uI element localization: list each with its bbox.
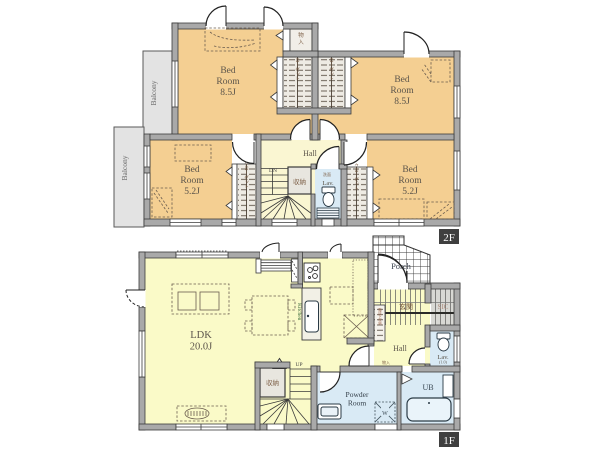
svg-text:クローゼット: クローゼット [354,163,360,191]
svg-text:クローゼット: クローゼット [329,53,335,81]
svg-text:物: 物 [298,31,304,39]
svg-text:玄関: 玄関 [399,302,413,311]
svg-text:Bed: Bed [402,165,418,175]
svg-text:Balcony: Balcony [149,80,158,105]
svg-text:1F: 1F [443,435,455,447]
svg-text:洗面: 洗面 [323,171,331,177]
svg-text:Lav.: Lav. [322,180,334,187]
svg-text:物入: 物入 [382,359,390,365]
svg-text:Balcony: Balcony [120,155,129,180]
svg-text:UP: UP [295,362,302,368]
svg-text:クローゼット: クローゼット [244,161,250,189]
svg-text:(1.0): (1.0) [439,360,447,365]
svg-text:8.5J: 8.5J [394,97,410,107]
svg-text:Room: Room [216,77,240,87]
svg-text:Bed: Bed [394,75,410,85]
svg-text:Bed: Bed [184,165,200,175]
svg-text:LDK: LDK [190,330,212,341]
svg-text:8.5J: 8.5J [220,88,236,98]
svg-text:クローゼット: クローゼット [295,53,301,81]
svg-text:収納: 収納 [293,177,306,186]
svg-text:20.0J: 20.0J [190,342,212,353]
svg-text:DN: DN [269,168,277,174]
svg-text:SIC: SIC [438,303,449,311]
svg-text:W: W [382,411,388,417]
svg-text:Room: Room [180,176,204,186]
svg-text:Hall: Hall [303,149,318,158]
svg-text:Room: Room [390,86,414,96]
svg-text:5.2J: 5.2J [184,187,200,197]
svg-text:Kitchen: Kitchen [296,303,302,321]
svg-text:入: 入 [298,40,304,46]
svg-text:5.2J: 5.2J [402,187,418,197]
svg-text:収納: 収納 [266,378,279,387]
svg-text:UB: UB [422,383,433,392]
svg-text:Hall: Hall [393,344,408,353]
svg-text:Bed: Bed [220,66,236,76]
svg-text:Room: Room [398,176,422,186]
svg-text:2F: 2F [443,232,455,244]
svg-text:階段下収納: 階段下収納 [377,307,381,326]
svg-text:Room: Room [348,399,367,408]
